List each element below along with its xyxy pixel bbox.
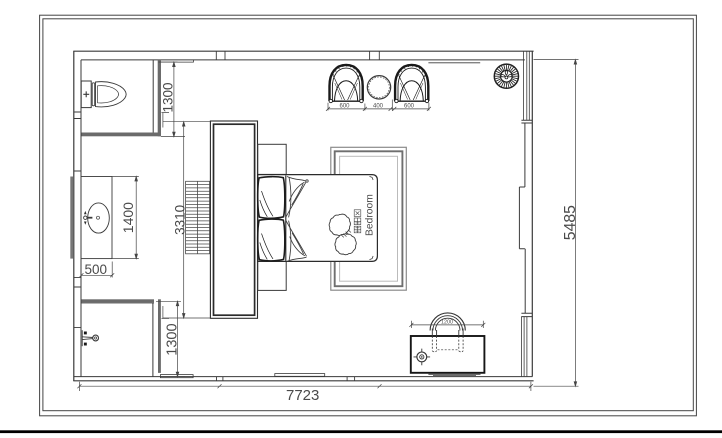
svg-text:1200: 1200 bbox=[441, 319, 453, 325]
svg-text:Bedroom: Bedroom bbox=[365, 194, 376, 236]
svg-text:600: 600 bbox=[404, 104, 415, 110]
svg-text:400: 400 bbox=[373, 104, 384, 110]
svg-text:600: 600 bbox=[340, 104, 351, 110]
svg-text:1300: 1300 bbox=[164, 323, 180, 355]
svg-text:1300: 1300 bbox=[161, 82, 176, 112]
svg-text:3310: 3310 bbox=[172, 205, 187, 235]
svg-text:1400: 1400 bbox=[120, 202, 136, 233]
svg-text:500: 500 bbox=[85, 262, 108, 277]
svg-text:5485: 5485 bbox=[562, 205, 579, 240]
svg-text:7723: 7723 bbox=[286, 387, 319, 404]
